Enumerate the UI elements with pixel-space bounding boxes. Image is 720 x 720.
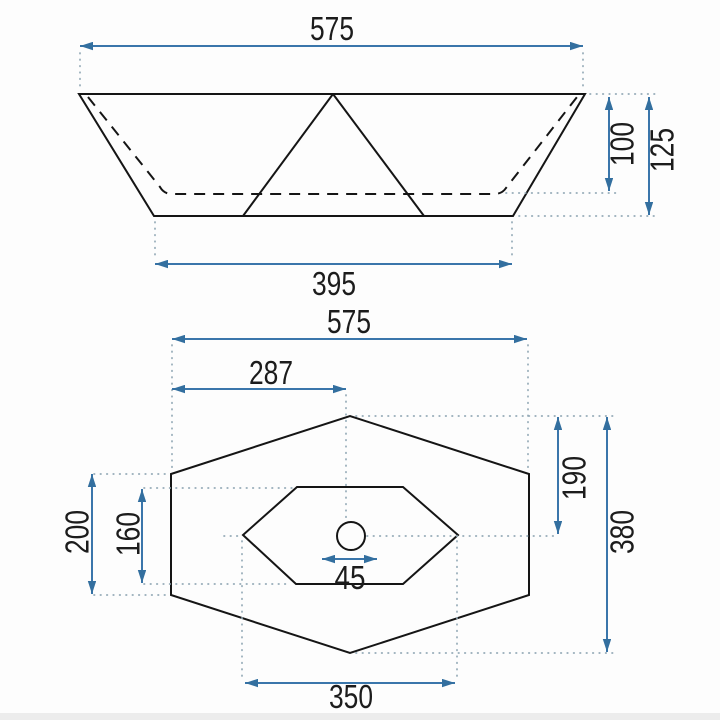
dim-label-plan-drain-from-left: 287 xyxy=(249,354,293,391)
front-view: 575 100 125 395 xyxy=(79,10,681,302)
technical-drawing-svg: 575 100 125 395 575 xyxy=(0,0,720,720)
front-fold-line-left xyxy=(243,94,333,216)
dim-label-front-top-width: 575 xyxy=(310,10,354,47)
dim-label-plan-total-width: 575 xyxy=(327,303,371,340)
dim-label-front-basin-depth: 100 xyxy=(604,122,641,166)
dim-label-front-total-height: 125 xyxy=(644,128,681,172)
front-body-outline xyxy=(79,94,585,216)
dim-label-plan-side-edge-height: 200 xyxy=(59,510,96,554)
front-fold-line-right xyxy=(333,94,424,216)
front-hidden-basin-outline xyxy=(88,97,577,194)
dim-label-plan-basin-inner-depth: 160 xyxy=(110,512,147,556)
drain-hole xyxy=(337,522,365,550)
dim-label-plan-drain-from-top: 190 xyxy=(556,456,593,500)
dim-label-plan-total-depth: 380 xyxy=(604,510,641,554)
dim-label-plan-basin-inner-width: 350 xyxy=(329,678,373,715)
bottom-edge-band xyxy=(0,713,720,720)
dim-label-front-bottom-width: 395 xyxy=(312,265,356,302)
plan-view: 575 287 190 380 200 160 45 350 xyxy=(59,303,641,715)
drawing-canvas: 575 100 125 395 575 xyxy=(0,0,720,720)
dim-label-drain-diameter: 45 xyxy=(335,559,366,596)
plan-rim-outline xyxy=(171,416,529,653)
